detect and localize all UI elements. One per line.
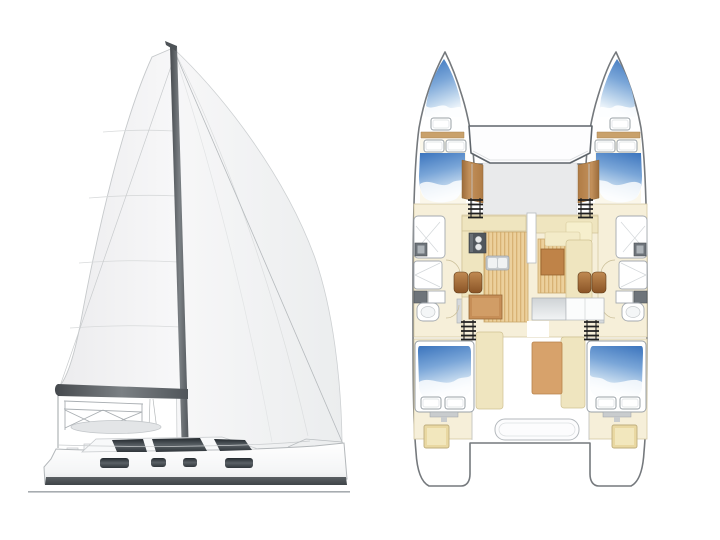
aft-counter (532, 298, 566, 320)
cockpit-bench-stbd (561, 337, 585, 408)
saloon (454, 213, 606, 337)
chart-table (469, 295, 502, 319)
sailboat-side-view (28, 41, 350, 493)
mainsail (59, 48, 183, 395)
cockpit-table (532, 342, 562, 394)
cockpit-bench-port (476, 332, 503, 409)
bow-trampoline (469, 126, 592, 163)
galley-sink (486, 256, 509, 270)
sea-line (28, 491, 350, 493)
catamaran-deck-plan (413, 52, 647, 486)
dining-table (541, 249, 564, 275)
boat-brochure-page (0, 0, 720, 540)
waterline-stripe (45, 477, 347, 485)
bimini-top (71, 421, 161, 434)
genoa-sail (173, 48, 342, 452)
boat-illustration-canvas (0, 0, 720, 540)
mast-post (527, 213, 536, 263)
galley-stove-icon (469, 233, 486, 253)
foredeck (483, 163, 577, 218)
aft-bench (495, 419, 579, 440)
